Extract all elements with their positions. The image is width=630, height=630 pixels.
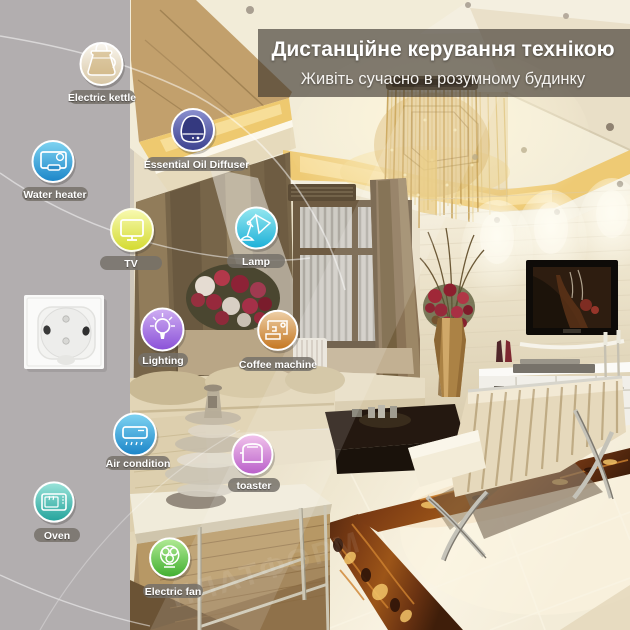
svg-text:Electric kettle: Electric kettle <box>68 92 136 104</box>
svg-text:TV: TV <box>124 258 137 270</box>
svg-text:Lighting: Lighting <box>142 355 183 367</box>
svg-text:Lamp: Lamp <box>242 256 270 268</box>
svg-text:Essential Oil Diffuser: Essential Oil Diffuser <box>144 159 250 171</box>
svg-text:Air condition: Air condition <box>106 458 171 470</box>
svg-text:Oven: Oven <box>44 530 70 542</box>
svg-text:Coffee machine: Coffee machine <box>239 359 317 371</box>
svg-text:Water heater: Water heater <box>23 189 86 201</box>
svg-text:Дистанційне керування технікою: Дистанційне керування технікою <box>271 38 614 61</box>
svg-text:Живіть сучасно в розумному буд: Живіть сучасно в розумному будинку <box>301 70 586 88</box>
svg-text:toaster: toaster <box>236 480 271 492</box>
svg-text:Electric fan: Electric fan <box>145 586 202 598</box>
